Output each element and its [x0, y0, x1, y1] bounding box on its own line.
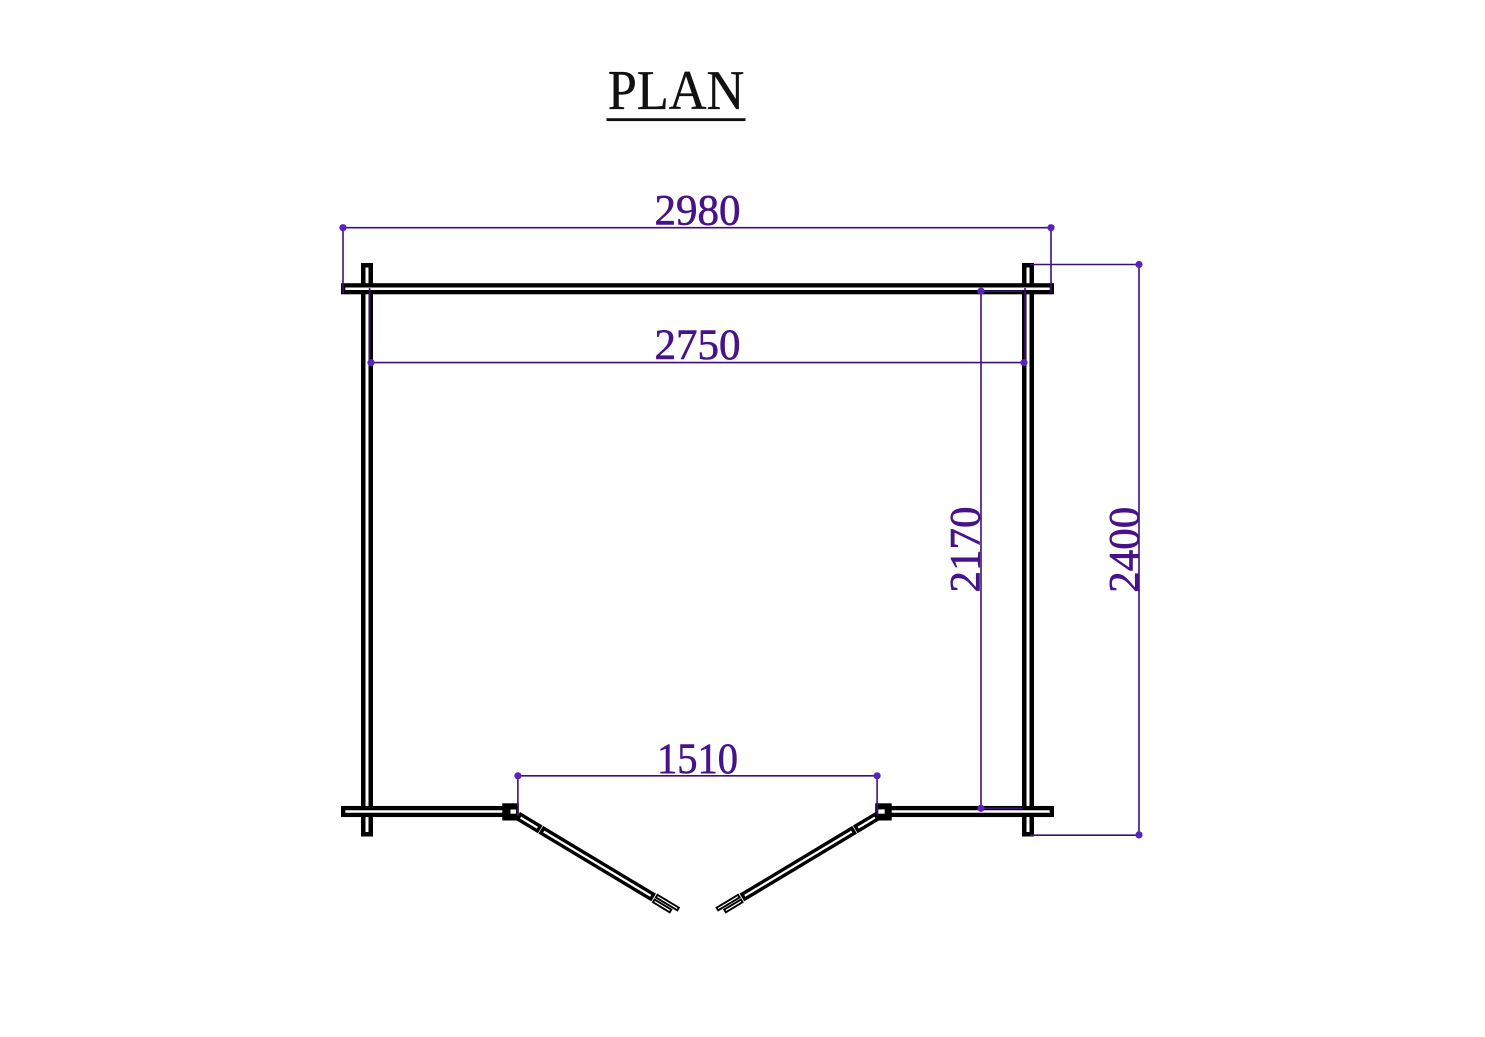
svg-text:2980: 2980: [655, 188, 741, 235]
svg-text:2400: 2400: [1101, 507, 1148, 593]
svg-text:1510: 1510: [657, 736, 738, 783]
svg-text:PLAN: PLAN: [608, 60, 745, 122]
svg-text:2170: 2170: [943, 507, 990, 593]
svg-text:2750: 2750: [655, 322, 741, 369]
